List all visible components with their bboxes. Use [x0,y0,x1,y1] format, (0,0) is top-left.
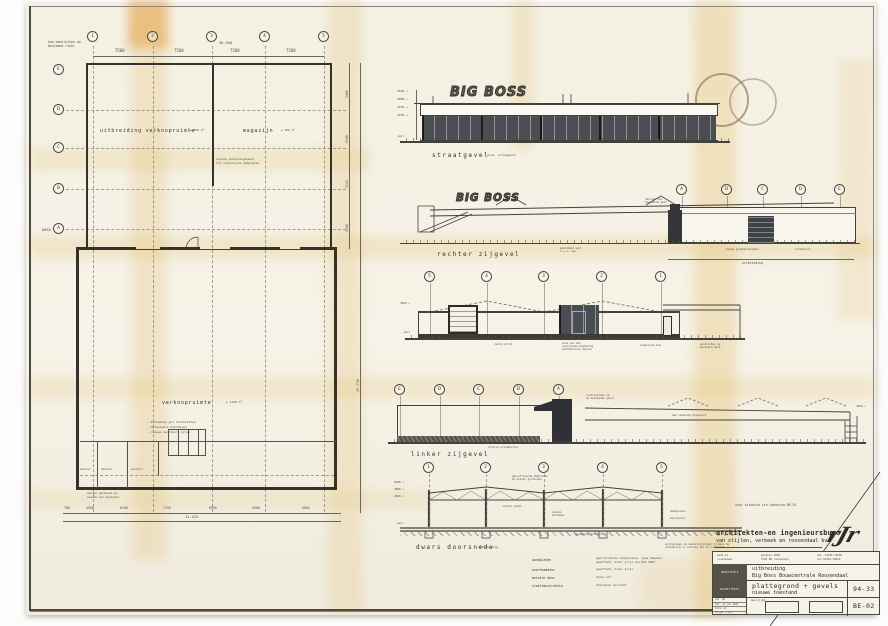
grid-bubble-col: B [513,384,524,395]
section-floor [400,528,742,531]
dimension-text: 5300 [345,135,349,143]
grid-bubble-row: A [53,223,64,234]
room-wall [198,429,199,456]
dimension-total: 30.500 [219,41,232,46]
room-label-magazijn: magazijn [243,128,273,135]
note-line: op stalen gordingen [512,478,542,481]
height-mark: 4300 + [394,495,404,499]
part-line2: nieuwe toestand [752,590,797,597]
room-area: ± 850 m² [190,129,204,133]
legend-desc: thermisch verzinkt [596,584,626,588]
legend-desc: kleur wit [596,576,611,580]
height-mark: 3600 + [400,302,410,306]
part-row-label-text: onderdeel [720,587,740,591]
grid-bubble-col: B [721,184,732,195]
dimension-text: 6440 [120,506,128,510]
dimension-line [93,56,324,57]
grid-bubble-label: D [57,107,60,112]
dimension-line [63,513,341,514]
room-area: ± 250 m² [281,129,295,133]
section-sublabel: uitbreiding [478,546,498,550]
dimension-line [668,259,854,260]
firm-address: kade 41 [717,554,728,557]
note-line: interne grondkering [488,446,518,449]
note-line: containers [795,248,811,251]
micro-divider [713,611,746,612]
dimension-text: 7500 [230,48,240,53]
firm-address: 4700 BB roosendaal [761,558,789,561]
dimension-text: 7500 [286,48,296,53]
room-wall [97,441,98,488]
dimension-text: 4500 [86,506,94,510]
note-line: t.o.v. nap [560,250,576,253]
note-line: aluminium deur [640,344,662,347]
dimension-text: 7500 [115,48,125,53]
grid-bubble-col: 2 [596,271,607,282]
extension-top-line [678,213,856,214]
grid-line [544,474,545,528]
grid-bubble-label: 5 [322,34,325,39]
firm-fax: fax 01650-58620 [817,558,840,561]
drawing-sheet: 1 2 3 4 5 E D C B A 7500 7500 7500 7500 … [0,0,888,626]
table-divider [847,580,848,616]
grid-bubble-label: 3 [542,465,545,470]
plan-wall-existing [300,247,337,250]
grid-bubble-label: 2 [484,465,487,470]
plan-partition [212,64,214,186]
grid-bubble-row: D [53,104,64,115]
section-columns [429,489,662,527]
grid-bubble-col: 3 [206,31,217,42]
grid-line [66,148,346,149]
roller-door [748,216,774,243]
grid-bubble-col: D [795,184,806,195]
sheet-number: BE-02 [853,602,875,610]
note-line: bestaande goot [645,201,667,204]
ground-hatch [400,532,742,536]
height-mark: 5500 + [397,90,408,94]
dimension-text: 6005 [302,506,310,510]
project-row-label-text: opdracht [721,570,739,574]
left-elev-band [585,408,850,442]
glazing-band [422,116,716,140]
grid-line [66,189,346,190]
height-line [416,90,417,140]
grid-bubble-label: C [57,145,60,150]
height-mark: 5000 + [397,98,408,102]
small-room-label: kantoor [80,468,91,471]
grid-bubble-label: 4 [601,465,604,470]
grid-bubble-label: D [799,187,802,192]
grid-bubble-col: 1 [423,462,434,473]
grid-bubble-label: B [517,387,520,392]
grid-bubble-row: B [53,183,64,194]
room-wall [188,429,189,456]
legend-term: metalen deur [532,576,555,580]
note-line: automatische deuren [562,348,592,351]
grid-bubble-col: 1 [87,31,98,42]
revision-cell [765,601,799,613]
dimension-total: 31.425 [185,515,198,520]
grid-line [153,46,154,512]
room-label-uitbreiding: uitbreiding verkoopruimte [100,128,195,135]
part-row-label: onderdeel [713,580,747,597]
dimension-line [360,63,361,513]
ground-line [388,442,866,444]
height-mark: 5300 + [394,481,404,485]
grid-line [265,46,266,512]
grid-bubble-label: C [477,387,480,392]
grid-bubble-col: C [473,384,484,395]
dimension-text: 6990 [209,506,217,510]
plan-wall [86,63,332,65]
walkway-line [80,475,334,476]
dimension-text: 5100 [345,224,349,232]
truss-chords [429,487,662,500]
grid-bubble-col: E [834,184,845,195]
entrance-door-frame [572,311,586,334]
grid-bubble-label: A [680,187,683,192]
height-mark: 4300 + [856,405,866,409]
grid-bubble-label: 2 [600,274,603,279]
grid-bubble-label: E [57,67,60,72]
plan-wall-existing [76,247,136,250]
drawing-number: 94-33 [853,585,875,593]
grid-bubble-label: C [761,187,764,192]
grid-bubble-label: 3 [542,274,545,279]
grid-bubble-label: 2 [151,34,154,39]
small-room-label: sanitair [131,468,144,471]
big-boss-sign: BIG BOSS [456,192,520,204]
grid-bubble-label: 4 [485,274,488,279]
grid-bubble-label: 5 [428,274,431,279]
legend-term: staalkonstruktie [532,584,563,588]
grid-bubble-col: 2 [147,31,158,42]
dimension-text: uitbreiding [742,261,763,265]
height-mark: 4250 + [397,106,408,110]
room-area: ± 1150 m² [226,401,242,405]
room-label-verkoop: verkoopruimte [162,400,212,407]
firm-address: postbus 1068 [761,554,780,557]
note-situatie: voor situatie zie tekening BE-01 [735,503,796,507]
note-line: nieuwe grasbetontegels [725,248,759,251]
grid-line [662,474,663,528]
roller-door [448,305,478,334]
grid-bubble-col: 3 [538,462,549,473]
micro-divider [713,602,746,603]
grid-bubble-col: A [553,384,564,395]
dimension-total: 32.720 [356,379,361,392]
note-line: sausen als bestaand [87,496,119,500]
grid-line [486,474,487,528]
firm-phone: tel. 01650-35600 [817,554,842,557]
firm-name-line2: van stijlen, verbeek en roosendaal bv [716,538,827,545]
grid-bubble-label: 5 [660,465,663,470]
height-mark: 4800 + [394,488,404,492]
grid-bubble-label: 4 [263,34,266,39]
note-line: bestaand werk [700,346,720,349]
height-mark: 3250 + [397,114,408,118]
grid-line [66,110,346,111]
small-door [663,316,672,336]
project-line1: uitbreiding [752,566,785,573]
dimension-text: 7150 [163,506,171,510]
gewijzigd-label: gewijzigd [751,599,765,602]
extension-top-line [397,405,540,406]
grid-bubble-col: E [394,384,405,395]
note-wand-line: tot onderzijde dakplaten [216,162,259,166]
grid-line [324,46,325,512]
ground-line [405,338,745,340]
elevation-label: rechter zijgevel [437,251,520,258]
dimension-text: 7500 [174,48,184,53]
stamp-circle [730,79,776,125]
plan-wall [330,63,332,249]
room-wall [158,441,159,476]
sanitary-cells [168,429,206,456]
small-room-label: kantine [101,468,112,471]
grid-bubble-label: E [398,387,401,392]
grid-line [66,229,346,230]
legend-desc: gemoffeld, kleur grijs [596,568,633,572]
elevation-label: straatgevel [432,152,489,159]
grid-bubble-col: 5 [424,271,435,282]
pylon-dark [552,399,572,442]
grid-bubble-label: B [57,186,60,191]
grid-bubble-label: A [57,226,60,231]
elevation-label: linker zijgevel [411,451,489,458]
grid-bubble-col: 4 [481,271,492,282]
note-line: betonplint [670,517,686,520]
grid-bubble-col: C [757,184,768,195]
ground-line [400,243,860,244]
micro-info-cell: get. RK dat. 14 jan 1994 form. A1 schaal… [713,597,747,615]
micro-divider [713,606,746,607]
note-line: de bestaande gevel [586,397,614,400]
plan-wall-existing [160,247,200,250]
grid-line [429,474,430,528]
grid-bubble-col: D [434,384,445,395]
note-line: kolommen [552,514,565,517]
grid-line [603,474,604,528]
fascia-band [420,104,718,116]
ground-line [400,141,730,143]
grid-bubble-col: 5 [318,31,329,42]
dimension-text: 700 [64,506,70,510]
legend-term: overheaddeur [532,568,555,572]
dimension-text: 6850 [42,228,51,233]
revision-cell [809,601,843,613]
grid-bubble-col: 3 [538,271,549,282]
grid-bubble-col: 4 [597,462,608,473]
legend-desc: gemoffeld, kleur grijs als RAL 9002 [596,561,655,565]
dimension-text: 5400 [345,90,349,98]
dimension-line [63,521,341,522]
plan-wall-existing [76,249,79,489]
room-wall [127,441,128,488]
big-boss-sign: BIG BOSS [450,85,527,100]
grid-bubble-col: 2 [480,462,491,473]
left-elev-roof-dashed [668,398,846,406]
note-hwa-line: bestaand riool [48,44,75,48]
dimension-text: 5225 [345,180,349,188]
peil-mark: peil [397,522,403,525]
grid-bubble-row: C [53,142,64,153]
room-wall [178,429,179,456]
plan-wall-existing [230,247,280,250]
peil-mark: peil [404,331,410,334]
firm-underline [714,547,822,548]
grid-bubble-row: E [53,64,64,75]
plan-wall [86,63,88,249]
elevation-sublabel: alum. vliesgevel [487,154,516,158]
grid-bubble-col: A [676,184,687,195]
grid-bubble-label: 1 [427,465,430,470]
grid-bubble-col: 4 [259,31,270,42]
firm-address: roosendaal [717,558,733,561]
note-line: stalen spant [503,505,522,508]
grid-bubble-label: B [725,187,728,192]
title-block-table: kade 41 roosendaal postbus 1068 4700 BB … [712,551,880,615]
legend-term: wandplaten [532,558,551,562]
note-line: wandplaten [670,510,686,513]
grid-bubble-label: A [557,387,560,392]
grid-bubble-label: 1 [91,34,94,39]
plan-wall-existing [334,249,337,489]
note-line: beton plint [495,343,512,346]
grid-bubble-label: E [838,187,841,192]
note-line: hwa inpandig afgevoerd [672,414,706,417]
dark-entry-column [668,210,682,243]
grid-bubble-col: 5 [656,462,667,473]
grid-line [93,46,94,512]
grid-bubble-label: D [438,387,441,392]
dimension-text: 5600 [252,506,260,510]
grid-bubble-col: 1 [655,271,666,282]
room-wall [80,441,336,442]
project-line2: Big Boss Bouwcentrale Roosendaal [752,573,848,580]
firm-name-line1: architekten-en ingenieursburo [716,529,840,538]
grid-bubble-label: 1 [659,274,662,279]
project-row-label: opdracht [713,564,747,580]
plan-wall-existing [76,487,337,490]
dark-roof-cap [670,204,680,210]
note-line: gewapende betonvloer [575,533,606,536]
grid-bubble-label: 3 [210,34,213,39]
